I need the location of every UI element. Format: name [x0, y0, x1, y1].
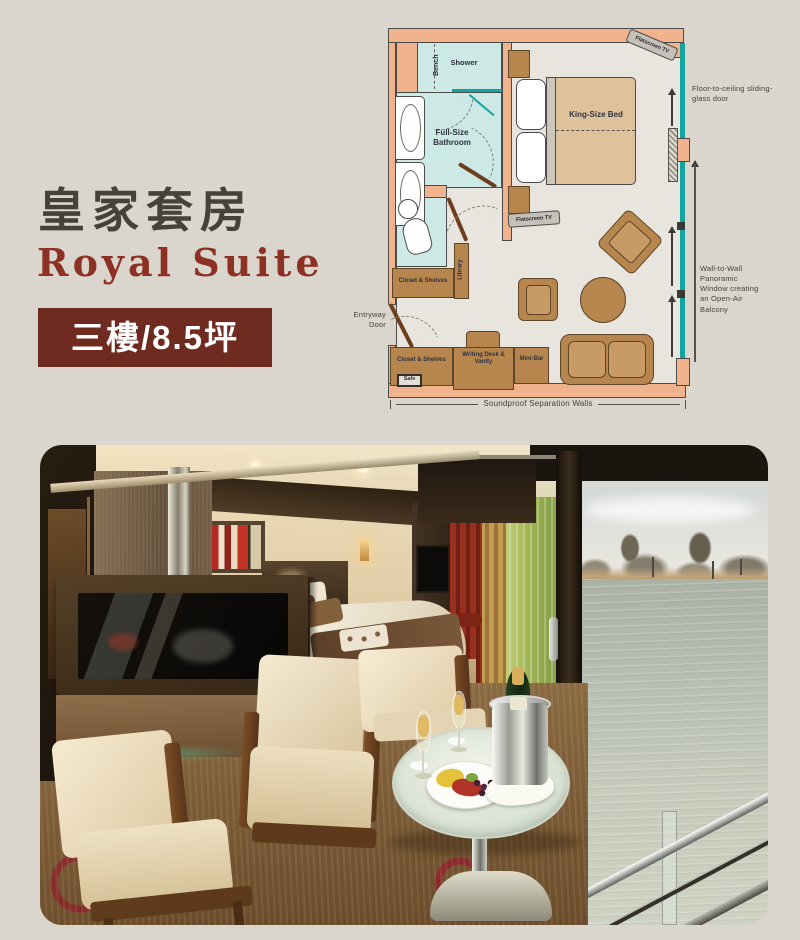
entryway-annotation: Entryway Door	[342, 310, 386, 330]
flute-stem	[458, 727, 460, 749]
champagne-bucket	[492, 703, 548, 785]
tick-icon	[685, 400, 686, 409]
table-base	[430, 871, 552, 921]
minibar	[514, 347, 549, 384]
soundproof-annotation: Soundproof Separation Walls	[483, 399, 592, 410]
page: 皇家套房 Royal Suite 三樓/8.5坪	[0, 0, 800, 940]
safe-label: Safe	[397, 376, 422, 383]
abstract-painting	[205, 521, 265, 573]
closet-upper-label: Closet & Shelves	[393, 278, 453, 285]
mooring-pole	[712, 561, 714, 579]
window-junction	[677, 290, 685, 298]
window-glass-wall	[680, 43, 685, 386]
panoramic-window-annotation: Wall-to-Wall Panoramic Window creating a…	[700, 264, 764, 315]
ceiling-light	[250, 461, 260, 467]
armchair-left	[44, 713, 269, 925]
shower-label: Shower	[434, 58, 494, 67]
window-junction	[677, 222, 685, 230]
soundproof-annotation-row: Soundproof Separation Walls	[390, 398, 686, 410]
wall-left	[388, 42, 396, 305]
sofa-cushion	[608, 341, 646, 378]
king-bed-label: King-Size Bed	[561, 110, 631, 120]
flute-foot	[415, 773, 432, 779]
sliding-door-annotation: Floor-to-ceiling sliding-glass door	[692, 84, 776, 104]
nightstand	[508, 186, 530, 214]
tv-reflection	[108, 633, 138, 651]
painting-canvas	[209, 525, 261, 569]
armchair-cushion	[526, 285, 551, 315]
toilet-tank	[398, 199, 418, 219]
flute-foot	[451, 747, 467, 752]
tick-icon	[390, 400, 391, 409]
partition-wood-grain	[94, 471, 212, 587]
bed-pillow	[516, 132, 546, 183]
bottle-label	[510, 697, 527, 710]
flute-stem	[422, 751, 424, 775]
sofa-cushion	[568, 341, 606, 378]
cloud	[585, 497, 755, 523]
page-subtitle: Royal Suite	[37, 240, 324, 285]
bathroom-label: Full-Size Bathroom	[417, 128, 487, 147]
window-arrow	[671, 230, 673, 286]
wall-block-topleft	[396, 40, 418, 93]
window-mullion	[676, 138, 690, 162]
armchair-cushion	[607, 219, 652, 264]
page-title: 皇家套房	[38, 172, 254, 241]
bed-center-line	[556, 130, 635, 131]
leader-line	[396, 404, 478, 405]
round-ottoman	[580, 277, 626, 323]
nightstand	[508, 50, 530, 78]
door-slide-arrow	[671, 92, 673, 126]
window-arrow	[671, 299, 673, 357]
bed-pillow	[516, 79, 546, 130]
shower-glass-wall	[452, 89, 504, 92]
coaster	[410, 761, 428, 770]
tv-reflection	[173, 629, 233, 663]
mooring-pole	[652, 557, 654, 577]
wall-tv	[416, 545, 450, 593]
door-handle	[549, 617, 558, 661]
sliding-door-panel	[668, 128, 678, 182]
tree	[620, 533, 640, 563]
leader-line	[598, 404, 680, 405]
balcony-glass-post	[662, 811, 677, 925]
flute-champagne	[418, 715, 429, 737]
writing-desk-label: Writing Desk & Vanity	[462, 352, 505, 366]
wall-sconce	[360, 539, 369, 561]
floor-area-badge: 三樓/8.5坪	[38, 308, 272, 367]
chrome-pillar	[168, 467, 190, 589]
flute-champagne	[454, 695, 464, 715]
closet-lower-label: Closet & Shelves	[391, 357, 452, 364]
minibar-label: Mini-Bar	[519, 356, 544, 363]
window-mullion	[676, 358, 690, 386]
coaster	[448, 737, 465, 745]
floorplan-diagram: King-Size Bed Closet & Shelves Library C…	[340, 22, 800, 424]
library-label: Library	[457, 248, 464, 292]
curtain-pelmet	[418, 459, 536, 523]
suite-photo	[40, 445, 768, 925]
mooring-pole	[740, 559, 742, 575]
king-bed	[555, 77, 636, 185]
panoramic-window-bracket	[694, 164, 696, 362]
tree	[688, 531, 712, 565]
bottle-foil	[512, 667, 524, 685]
